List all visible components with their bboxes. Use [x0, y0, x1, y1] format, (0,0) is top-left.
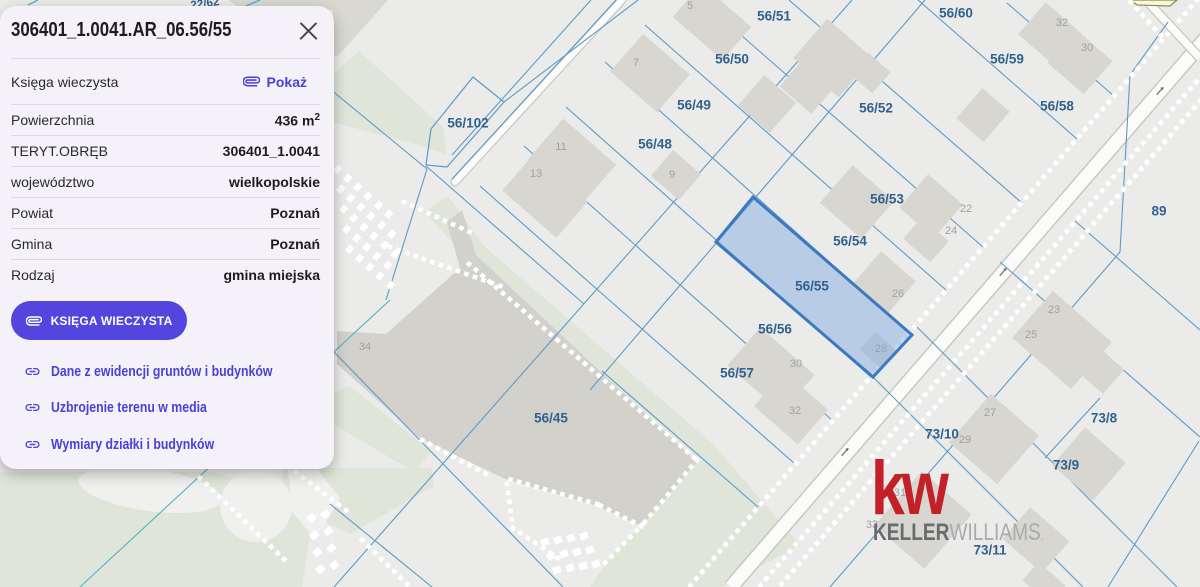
- svg-text:26: 26: [892, 288, 904, 300]
- svg-text:56/54: 56/54: [833, 234, 867, 249]
- svg-text:89: 89: [1151, 204, 1166, 219]
- svg-text:56/51: 56/51: [757, 9, 791, 24]
- svg-text:23: 23: [1048, 304, 1060, 316]
- svg-text:56/53: 56/53: [870, 192, 904, 207]
- svg-text:24: 24: [945, 225, 957, 237]
- svg-text:56/102: 56/102: [447, 116, 488, 131]
- svg-text:5: 5: [687, 0, 693, 12]
- svg-text:29: 29: [959, 434, 971, 446]
- svg-text:56/48: 56/48: [638, 137, 672, 152]
- svg-text:34: 34: [359, 341, 371, 353]
- svg-text:30: 30: [790, 358, 802, 370]
- svg-text:56/57: 56/57: [720, 366, 754, 381]
- svg-text:11: 11: [555, 141, 566, 153]
- svg-text:KELLERWILLIAMS.: KELLERWILLIAMS.: [873, 518, 1044, 546]
- svg-text:22: 22: [960, 203, 972, 215]
- svg-text:32: 32: [1056, 17, 1068, 29]
- svg-text:56/58: 56/58: [1040, 99, 1074, 114]
- svg-text:56/60: 56/60: [939, 6, 973, 21]
- svg-text:30: 30: [1081, 42, 1093, 54]
- svg-text:56/56: 56/56: [758, 322, 792, 337]
- svg-text:73/10: 73/10: [925, 427, 959, 442]
- svg-text:7: 7: [633, 57, 639, 69]
- svg-text:25: 25: [1025, 329, 1037, 341]
- svg-text:56/50: 56/50: [715, 52, 749, 67]
- svg-text:9: 9: [669, 169, 675, 181]
- svg-text:27: 27: [984, 407, 996, 419]
- svg-text:56/52: 56/52: [859, 101, 893, 116]
- svg-text:56/49: 56/49: [677, 98, 711, 113]
- svg-text:73/8: 73/8: [1091, 411, 1118, 426]
- svg-text:32: 32: [789, 405, 801, 417]
- svg-text:56/55: 56/55: [795, 279, 829, 294]
- svg-text:56/59: 56/59: [990, 52, 1024, 67]
- svg-text:13: 13: [530, 168, 542, 180]
- svg-text:73/9: 73/9: [1053, 458, 1079, 473]
- svg-text:56/45: 56/45: [534, 411, 568, 426]
